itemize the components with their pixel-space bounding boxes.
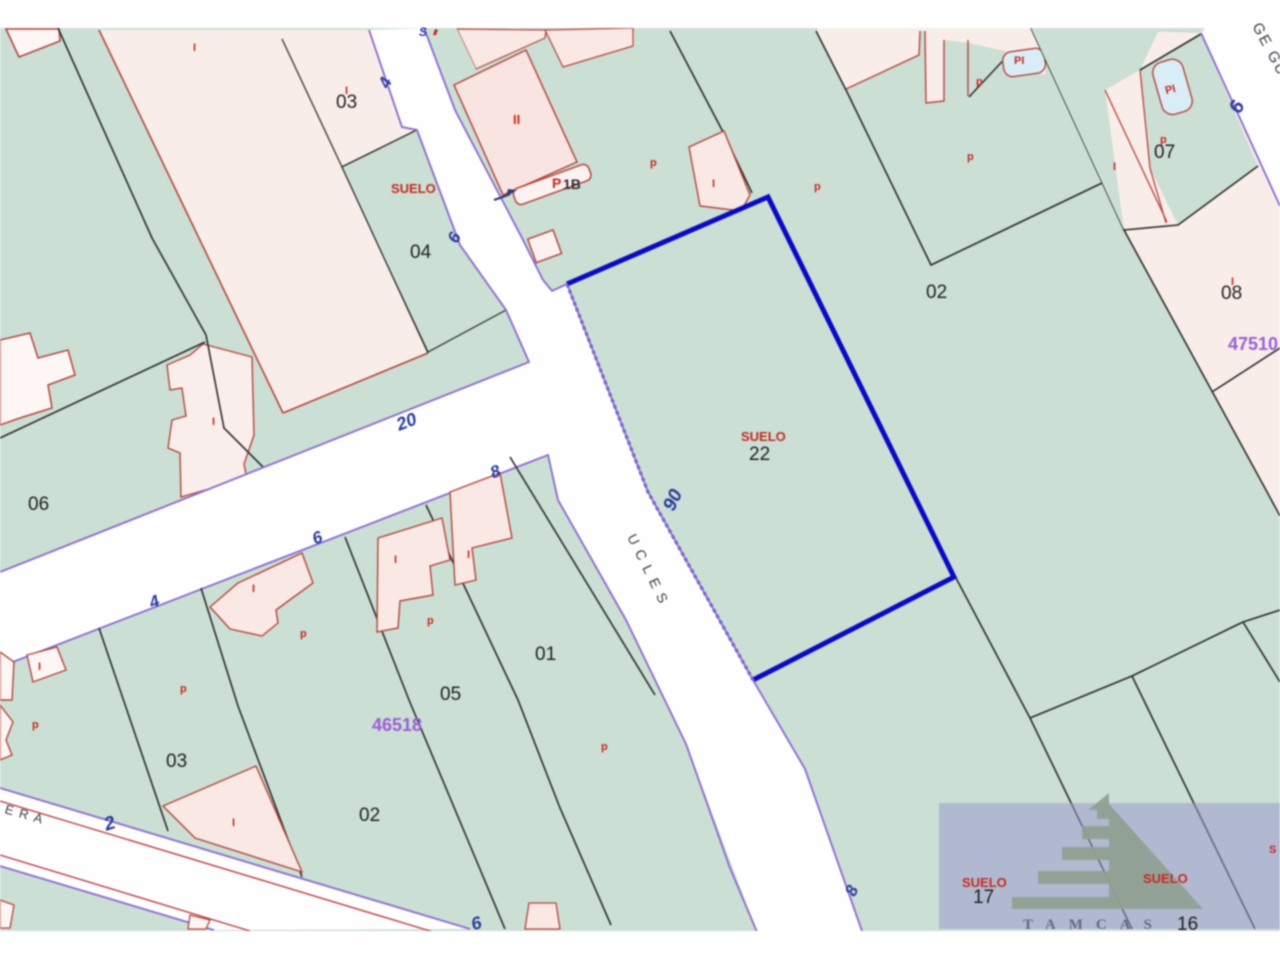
svg-text:47510: 47510 bbox=[1228, 334, 1278, 354]
svg-text:p: p bbox=[427, 615, 434, 627]
svg-text:03: 03 bbox=[166, 751, 187, 772]
svg-text:I: I bbox=[467, 549, 470, 561]
svg-text:p: p bbox=[300, 628, 307, 640]
svg-text:I: I bbox=[1231, 276, 1234, 288]
svg-text:I: I bbox=[394, 554, 397, 566]
svg-text:05: 05 bbox=[440, 684, 461, 705]
svg-text:P: P bbox=[552, 175, 561, 191]
svg-text:1B: 1B bbox=[563, 176, 581, 192]
svg-text:PI: PI bbox=[1014, 55, 1024, 67]
svg-text:22: 22 bbox=[749, 444, 770, 465]
svg-text:SUELO: SUELO bbox=[962, 875, 1007, 890]
svg-text:p: p bbox=[601, 741, 608, 753]
svg-text:SUELO: SUELO bbox=[391, 181, 436, 196]
svg-text:p: p bbox=[650, 157, 657, 169]
svg-text:16: 16 bbox=[1177, 914, 1198, 935]
svg-text:SUELO: SUELO bbox=[741, 429, 786, 444]
svg-text:I: I bbox=[193, 42, 196, 54]
svg-text:06: 06 bbox=[28, 494, 49, 515]
svg-text:p: p bbox=[32, 719, 39, 731]
svg-text:I: I bbox=[232, 817, 235, 829]
svg-text:I: I bbox=[212, 416, 215, 428]
svg-text:S: S bbox=[419, 25, 427, 39]
svg-text:I: I bbox=[1113, 161, 1116, 173]
svg-text:II: II bbox=[513, 112, 520, 127]
svg-text:02: 02 bbox=[359, 805, 380, 826]
svg-text:02: 02 bbox=[926, 282, 947, 303]
svg-text:S: S bbox=[1269, 844, 1276, 856]
svg-text:01: 01 bbox=[535, 644, 556, 665]
svg-text:p: p bbox=[976, 76, 983, 88]
svg-text:17: 17 bbox=[973, 887, 994, 908]
svg-text:I: I bbox=[38, 661, 41, 673]
svg-text:p: p bbox=[1160, 134, 1167, 146]
svg-text:46518: 46518 bbox=[372, 715, 422, 735]
svg-text:I: I bbox=[345, 85, 348, 97]
svg-text:TAMCAS: TAMCAS bbox=[1023, 917, 1165, 933]
svg-text:04: 04 bbox=[410, 242, 432, 263]
svg-text:p: p bbox=[967, 151, 974, 163]
svg-text:p: p bbox=[814, 181, 821, 193]
svg-text:I: I bbox=[712, 178, 715, 190]
svg-text:p: p bbox=[180, 683, 187, 695]
svg-text:SUELO: SUELO bbox=[1143, 871, 1188, 886]
svg-text:I: I bbox=[252, 583, 255, 595]
